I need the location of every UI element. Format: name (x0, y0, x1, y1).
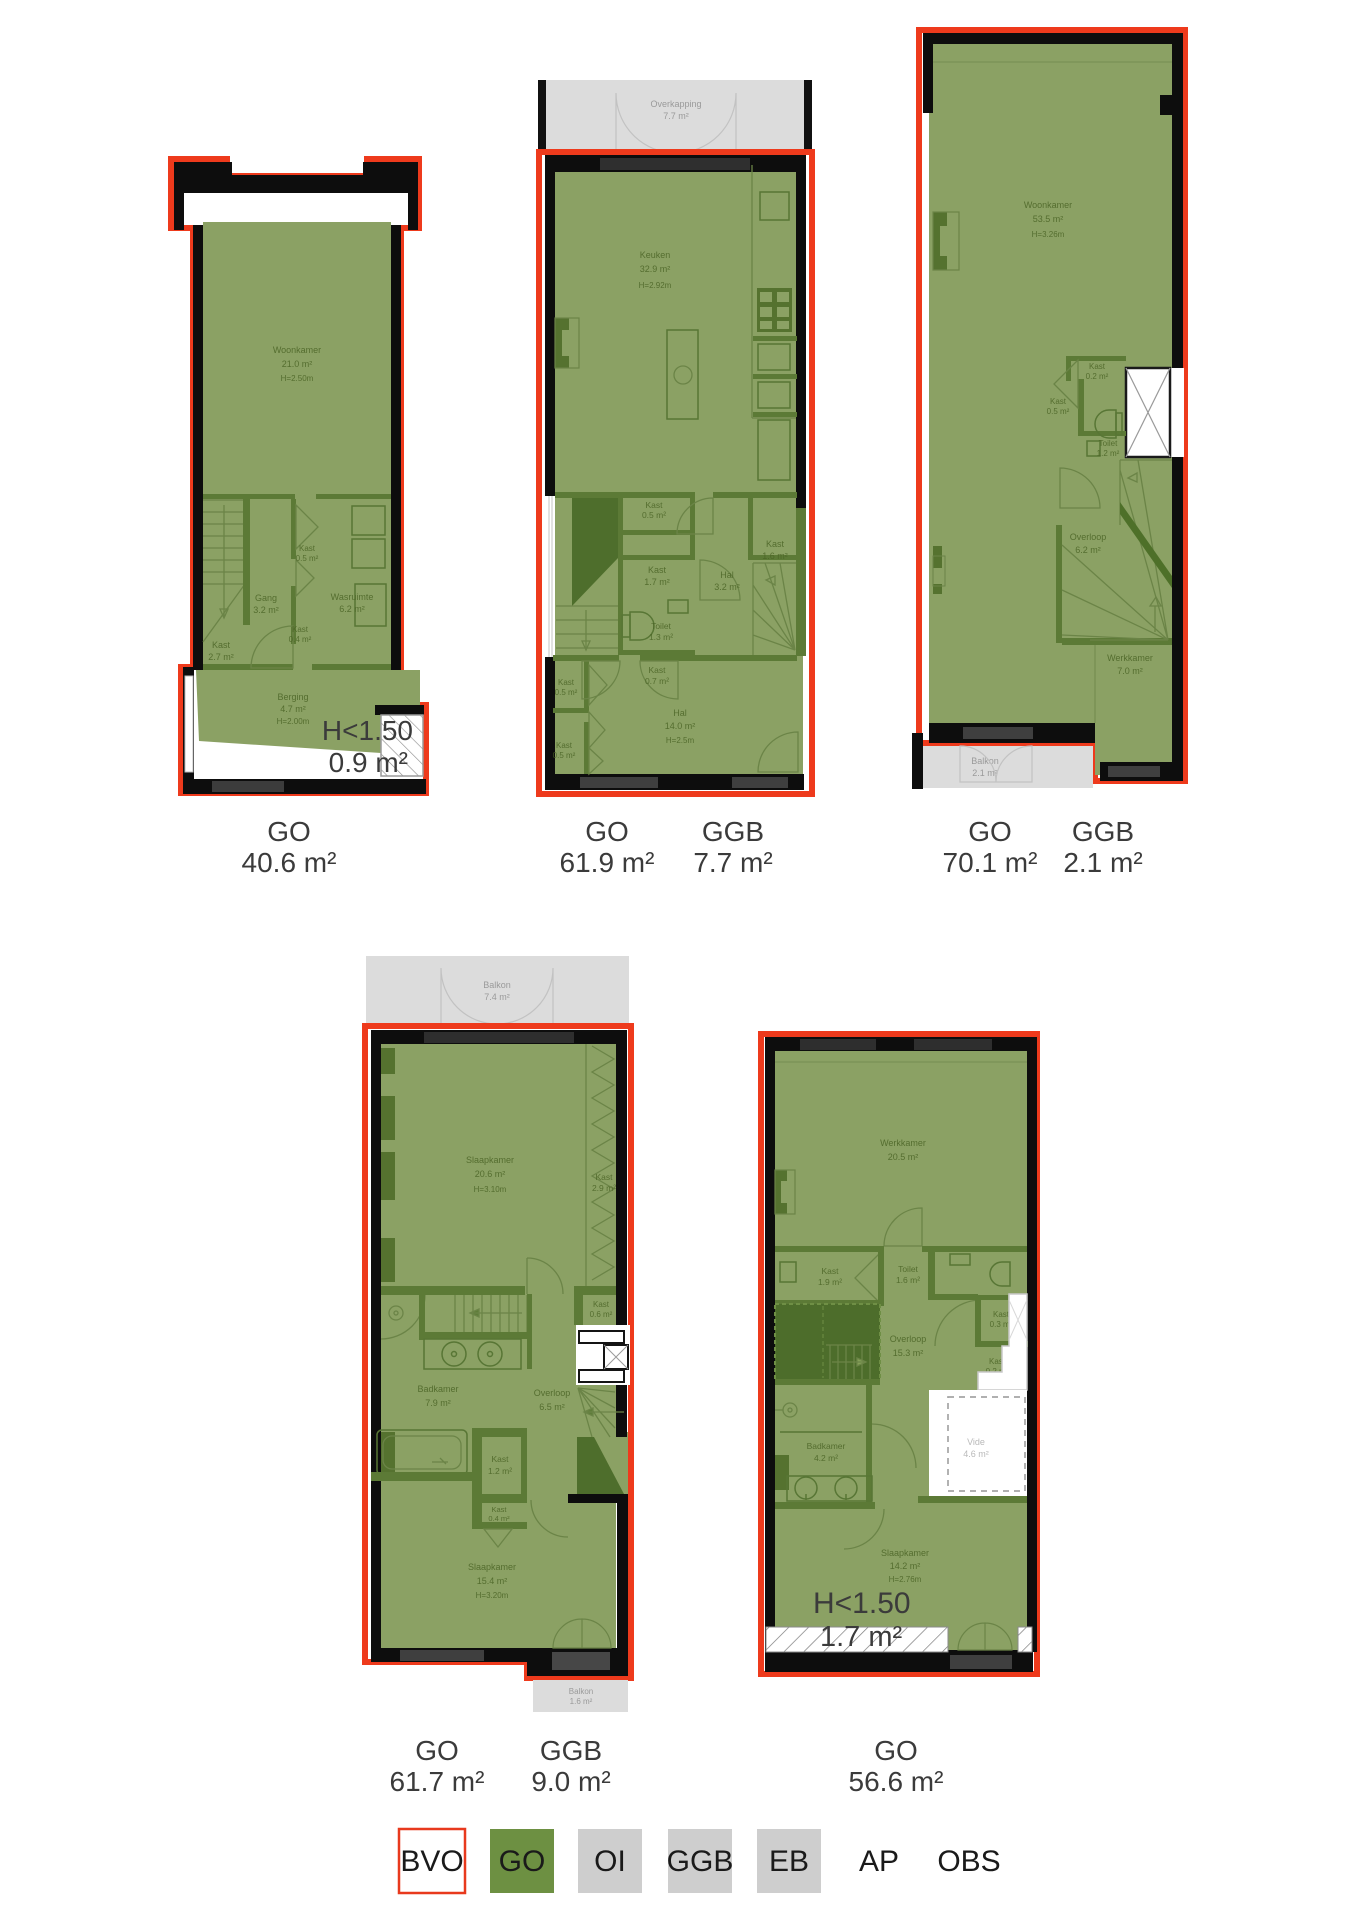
svg-text:4.6 m²: 4.6 m² (963, 1449, 989, 1459)
svg-text:Balkon: Balkon (569, 1687, 593, 1696)
svg-text:2.1 m²: 2.1 m² (1063, 847, 1142, 878)
svg-text:GO: GO (585, 816, 629, 847)
svg-text:H=3.20m: H=3.20m (476, 1591, 509, 1600)
svg-text:1.3 m²: 1.3 m² (649, 632, 673, 642)
svg-text:Kast: Kast (993, 1310, 1010, 1319)
svg-text:H=3.26m: H=3.26m (1032, 230, 1065, 239)
svg-text:61.7 m²: 61.7 m² (390, 1766, 485, 1797)
svg-text:OBS: OBS (937, 1845, 1000, 1878)
svg-text:Toilet: Toilet (651, 621, 671, 631)
svg-text:0.7 m²: 0.7 m² (645, 676, 669, 686)
svg-text:Overkapping: Overkapping (650, 99, 701, 109)
svg-text:1.7 m²: 1.7 m² (644, 577, 670, 587)
svg-text:Toilet: Toilet (1099, 439, 1118, 448)
svg-text:1.2 m²: 1.2 m² (1097, 449, 1120, 458)
svg-text:15.3 m²: 15.3 m² (893, 1348, 924, 1358)
svg-text:GGB: GGB (702, 816, 764, 847)
svg-text:20.6 m²: 20.6 m² (475, 1169, 506, 1179)
svg-text:2.9 m²: 2.9 m² (592, 1183, 616, 1193)
svg-text:OI: OI (594, 1845, 626, 1878)
svg-text:GO: GO (968, 816, 1012, 847)
svg-text:1.6 m²: 1.6 m² (896, 1275, 920, 1285)
svg-text:Slaapkamer: Slaapkamer (468, 1562, 516, 1572)
svg-text:3.2 m²: 3.2 m² (714, 582, 740, 592)
svg-text:9.0 m²: 9.0 m² (531, 1766, 610, 1797)
svg-text:7.4 m²: 7.4 m² (484, 992, 510, 1002)
svg-text:56.6 m²: 56.6 m² (849, 1766, 944, 1797)
svg-text:Woonkamer: Woonkamer (1024, 200, 1072, 210)
svg-text:H=2.76m: H=2.76m (889, 1575, 922, 1584)
svg-text:Werkkamer: Werkkamer (1107, 653, 1153, 663)
svg-text:Wasruimte: Wasruimte (331, 592, 374, 602)
svg-text:Kast: Kast (1050, 397, 1067, 406)
svg-text:0.2 m²: 0.2 m² (1086, 372, 1109, 381)
svg-text:Overloop: Overloop (534, 1388, 571, 1398)
svg-text:Gang: Gang (255, 593, 277, 603)
svg-text:Balkon: Balkon (483, 980, 511, 990)
svg-text:7.7 m²: 7.7 m² (693, 847, 772, 878)
svg-text:Keuken: Keuken (640, 250, 671, 260)
svg-text:H=2.5m: H=2.5m (666, 736, 695, 745)
svg-text:GO: GO (499, 1845, 546, 1878)
svg-text:2.7 m²: 2.7 m² (208, 652, 234, 662)
svg-text:1.2 m²: 1.2 m² (488, 1466, 512, 1476)
svg-text:4.2 m²: 4.2 m² (814, 1453, 838, 1463)
svg-text:Kast: Kast (491, 1454, 509, 1464)
svg-text:Kast: Kast (648, 565, 667, 575)
svg-text:Werkkamer: Werkkamer (880, 1138, 926, 1148)
svg-text:Kast: Kast (595, 1172, 613, 1182)
svg-text:Kast: Kast (821, 1266, 839, 1276)
svg-text:20.5 m²: 20.5 m² (888, 1152, 919, 1162)
svg-text:H=2.92m: H=2.92m (639, 281, 672, 290)
svg-text:1.6 m²: 1.6 m² (762, 551, 788, 561)
svg-text:Kast: Kast (491, 1505, 507, 1514)
svg-text:Toilet: Toilet (898, 1264, 918, 1274)
svg-text:32.9 m²: 32.9 m² (640, 264, 671, 274)
svg-text:GO: GO (874, 1735, 918, 1766)
svg-text:61.9 m²: 61.9 m² (560, 847, 655, 878)
svg-text:7.0 m²: 7.0 m² (1117, 666, 1143, 676)
svg-text:Balkon: Balkon (971, 756, 999, 766)
svg-text:GO: GO (415, 1735, 459, 1766)
svg-text:0.5 m²: 0.5 m² (555, 688, 578, 697)
svg-text:BVO: BVO (400, 1845, 463, 1878)
svg-text:0.5 m²: 0.5 m² (553, 751, 576, 760)
svg-text:53.5 m²: 53.5 m² (1033, 214, 1064, 224)
svg-text:Kast: Kast (299, 544, 316, 553)
svg-text:14.2 m²: 14.2 m² (890, 1561, 921, 1571)
svg-text:Kast: Kast (556, 741, 573, 750)
svg-text:1.6 m²: 1.6 m² (570, 1697, 593, 1706)
svg-text:H<1.50: H<1.50 (322, 715, 413, 746)
svg-text:0.6 m²: 0.6 m² (590, 1310, 613, 1319)
svg-text:0.5 m²: 0.5 m² (296, 554, 319, 563)
svg-text:0.5 m²: 0.5 m² (642, 510, 666, 520)
svg-text:H=2.00m: H=2.00m (277, 717, 310, 726)
svg-text:40.6 m²: 40.6 m² (242, 847, 337, 878)
svg-text:H=3.10m: H=3.10m (474, 1185, 507, 1194)
svg-text:Kast: Kast (766, 539, 785, 549)
svg-text:GGB: GGB (667, 1845, 734, 1878)
svg-text:Overloop: Overloop (890, 1334, 927, 1344)
svg-text:Slaapkamer: Slaapkamer (881, 1548, 929, 1558)
svg-text:7.7 m²: 7.7 m² (663, 111, 689, 121)
svg-text:Slaapkamer: Slaapkamer (466, 1155, 514, 1165)
svg-text:GO: GO (267, 816, 311, 847)
svg-text:1.7 m²: 1.7 m² (820, 1621, 903, 1653)
svg-text:1.9 m²: 1.9 m² (818, 1277, 842, 1287)
svg-text:Kast: Kast (645, 500, 663, 510)
svg-text:H=2.50m: H=2.50m (281, 374, 314, 383)
svg-text:Woonkamer: Woonkamer (273, 345, 321, 355)
svg-text:15.4 m²: 15.4 m² (477, 1576, 508, 1586)
svg-text:4.7 m²: 4.7 m² (280, 704, 306, 714)
svg-text:Kast: Kast (212, 640, 231, 650)
svg-text:Kast: Kast (593, 1300, 610, 1309)
svg-text:0.4 m²: 0.4 m² (289, 635, 312, 644)
svg-text:Badkamer: Badkamer (417, 1384, 458, 1394)
svg-text:GGB: GGB (1072, 816, 1134, 847)
svg-text:70.1 m²: 70.1 m² (943, 847, 1038, 878)
svg-text:21.0 m²: 21.0 m² (282, 359, 313, 369)
svg-text:Badkamer: Badkamer (807, 1441, 846, 1451)
svg-text:Overloop: Overloop (1070, 532, 1107, 542)
svg-text:Hal: Hal (673, 708, 687, 718)
svg-text:0.5 m²: 0.5 m² (1047, 407, 1070, 416)
svg-text:7.9 m²: 7.9 m² (425, 1398, 451, 1408)
svg-text:H<1.50: H<1.50 (813, 1587, 911, 1620)
svg-text:Kast: Kast (1089, 362, 1106, 371)
svg-text:Kast: Kast (558, 678, 575, 687)
svg-text:Vide: Vide (967, 1437, 985, 1447)
svg-text:Kast: Kast (292, 625, 309, 634)
svg-text:AP: AP (859, 1845, 899, 1878)
svg-text:Hal: Hal (720, 570, 734, 580)
svg-text:Kast: Kast (648, 665, 666, 675)
svg-text:Berging: Berging (277, 692, 308, 702)
svg-text:6.5 m²: 6.5 m² (539, 1402, 565, 1412)
svg-text:0.9 m²: 0.9 m² (329, 747, 408, 778)
svg-text:0.4 m²: 0.4 m² (488, 1514, 510, 1523)
svg-text:6.2 m²: 6.2 m² (339, 604, 365, 614)
svg-text:EB: EB (769, 1845, 809, 1878)
svg-text:14.0 m²: 14.0 m² (665, 721, 696, 731)
svg-text:6.2 m²: 6.2 m² (1075, 545, 1101, 555)
svg-text:GGB: GGB (540, 1735, 602, 1766)
svg-text:3.2 m²: 3.2 m² (253, 605, 279, 615)
